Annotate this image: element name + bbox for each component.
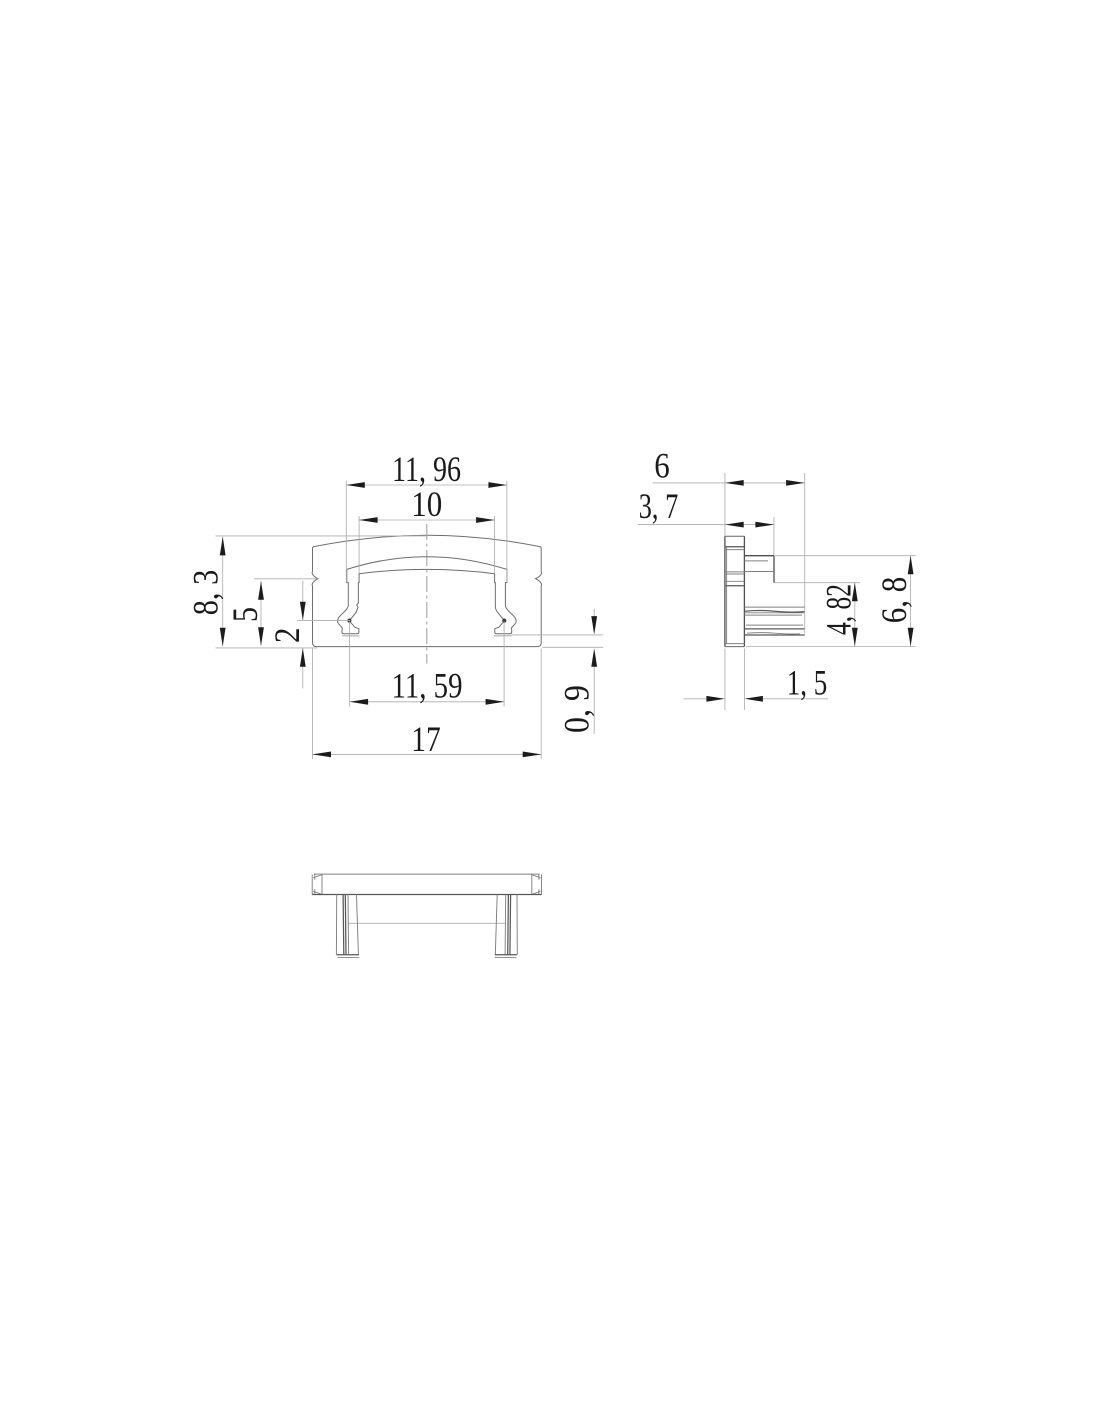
svg-text:10: 10 — [411, 484, 442, 524]
svg-text:6, 8: 6, 8 — [874, 577, 914, 624]
svg-text:11, 96: 11, 96 — [392, 449, 461, 489]
svg-text:1, 5: 1, 5 — [787, 662, 828, 702]
svg-text:6: 6 — [654, 446, 670, 486]
svg-text:11, 59: 11, 59 — [392, 666, 463, 706]
svg-text:17: 17 — [411, 719, 441, 759]
svg-text:3, 7: 3, 7 — [639, 486, 679, 526]
svg-text:8, 3: 8, 3 — [186, 570, 226, 616]
svg-text:2: 2 — [267, 628, 307, 644]
svg-text:5: 5 — [225, 607, 265, 622]
svg-text:0, 9: 0, 9 — [557, 685, 597, 733]
svg-text:4, 82: 4, 82 — [819, 584, 859, 635]
